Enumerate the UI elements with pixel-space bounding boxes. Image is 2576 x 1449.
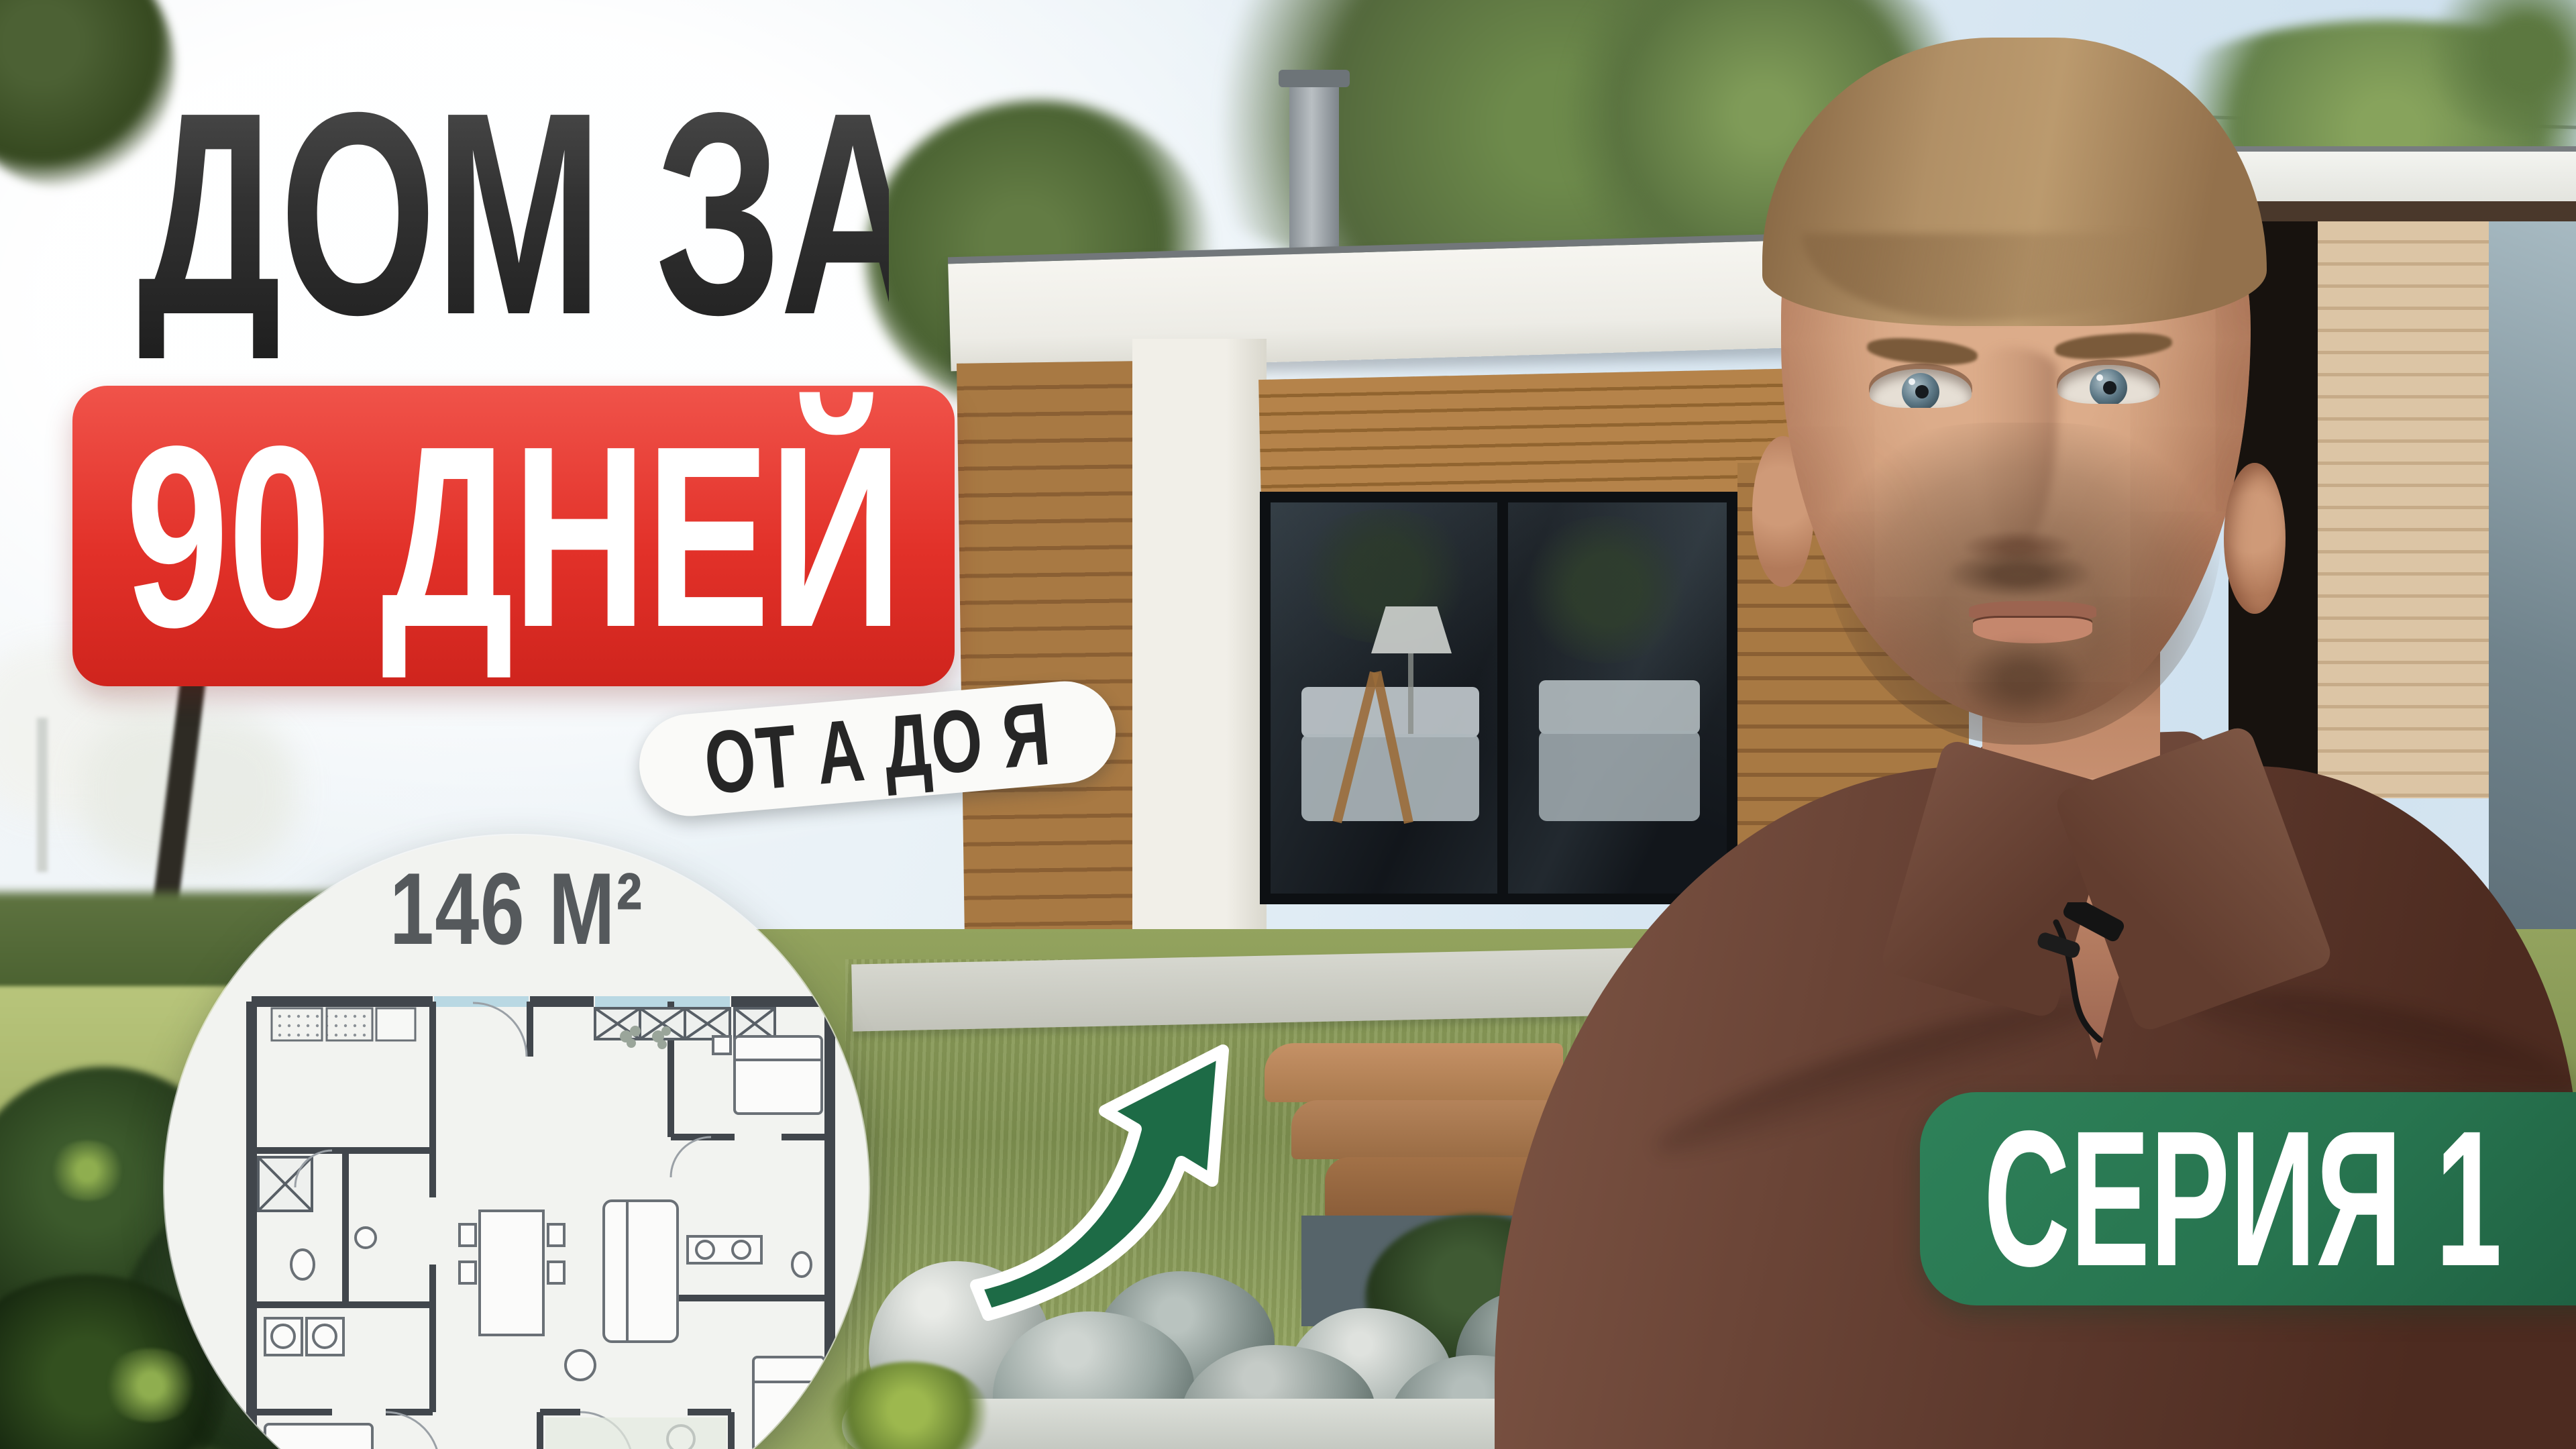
mustache [1947, 550, 2092, 598]
title-text: ДОМ ЗА [138, 70, 889, 358]
eye-right [2057, 365, 2159, 404]
floor-plan-inset: 146 М² [164, 835, 869, 1449]
chin-beard [1961, 637, 2085, 721]
days-badge-label: 90 ДНЕЙ [125, 407, 902, 665]
house-white-corner [1132, 339, 1267, 943]
eye-glint [2096, 374, 2103, 381]
garden-post [37, 718, 48, 872]
eye-glint [1909, 378, 1915, 385]
window-mullion [1497, 502, 1508, 894]
video-thumbnail: ДОМ ЗА 90 ДНЕЙ ОТ А ДО Я [0, 0, 2576, 1449]
area-label: 146 М² [242, 858, 792, 960]
patio-lamp-pole [1408, 653, 1413, 734]
wood-step-2 [1291, 1100, 1563, 1159]
presenter-ear-right [2224, 463, 2286, 614]
days-badge: 90 ДНЕЙ [72, 386, 955, 686]
leaf-highlight [47, 1140, 127, 1201]
wood-step-1 [1265, 1043, 1563, 1102]
garage-roof-fascia [2224, 146, 2576, 205]
curved-arrow-icon [956, 1005, 1251, 1340]
episode-badge: СЕРИЯ 1 [1920, 1092, 2576, 1305]
lavalier-mic-icon [2036, 902, 2150, 1057]
patio-sofa2-back [1539, 680, 1700, 734]
garage-wood-door [2318, 221, 2492, 798]
chimney-cap [1279, 70, 1350, 87]
eye-left [1870, 369, 1972, 408]
eyebrow-left [1866, 335, 1979, 368]
house-wood-wall-left [957, 361, 1142, 941]
episode-badge-label: СЕРИЯ 1 [1984, 1102, 2502, 1295]
glass-tree-reflection-2 [1519, 516, 1693, 663]
house-glass-doors [1260, 492, 1737, 904]
pupil [1915, 385, 1929, 398]
upper-lip [1969, 601, 2096, 620]
eyebrow-right [2054, 330, 2173, 362]
patio-sofa2-seat [1539, 731, 1700, 821]
presenter-head [1781, 52, 2251, 723]
garage-glass-strip [2489, 221, 2576, 1020]
pupil [2103, 381, 2116, 394]
